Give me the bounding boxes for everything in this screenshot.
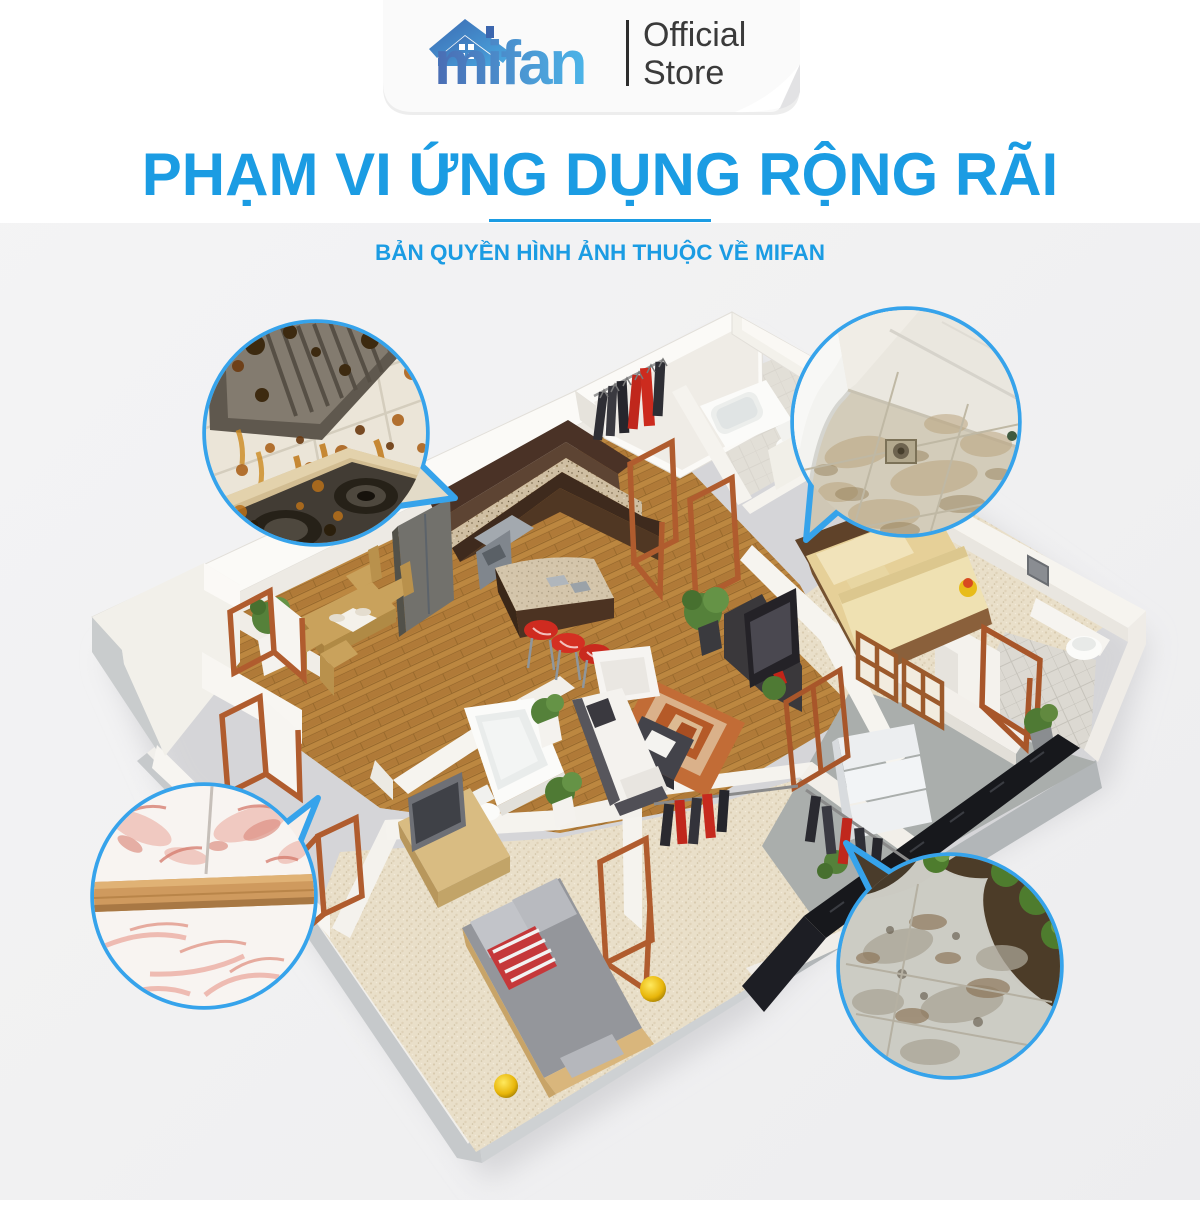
svg-text:mifan: mifan — [434, 29, 584, 98]
svg-text:Store: Store — [643, 54, 724, 92]
svg-text:BẢN QUYỀN HÌNH ẢNH THUỘC VỀ MI: BẢN QUYỀN HÌNH ẢNH THUỘC VỀ MIFAN — [375, 240, 825, 265]
svg-text:PHẠM VI ỨNG DỤNG RỘNG RÃI: PHẠM VI ỨNG DỤNG RỘNG RÃI — [142, 141, 1058, 208]
svg-text:Official: Official — [643, 16, 746, 54]
